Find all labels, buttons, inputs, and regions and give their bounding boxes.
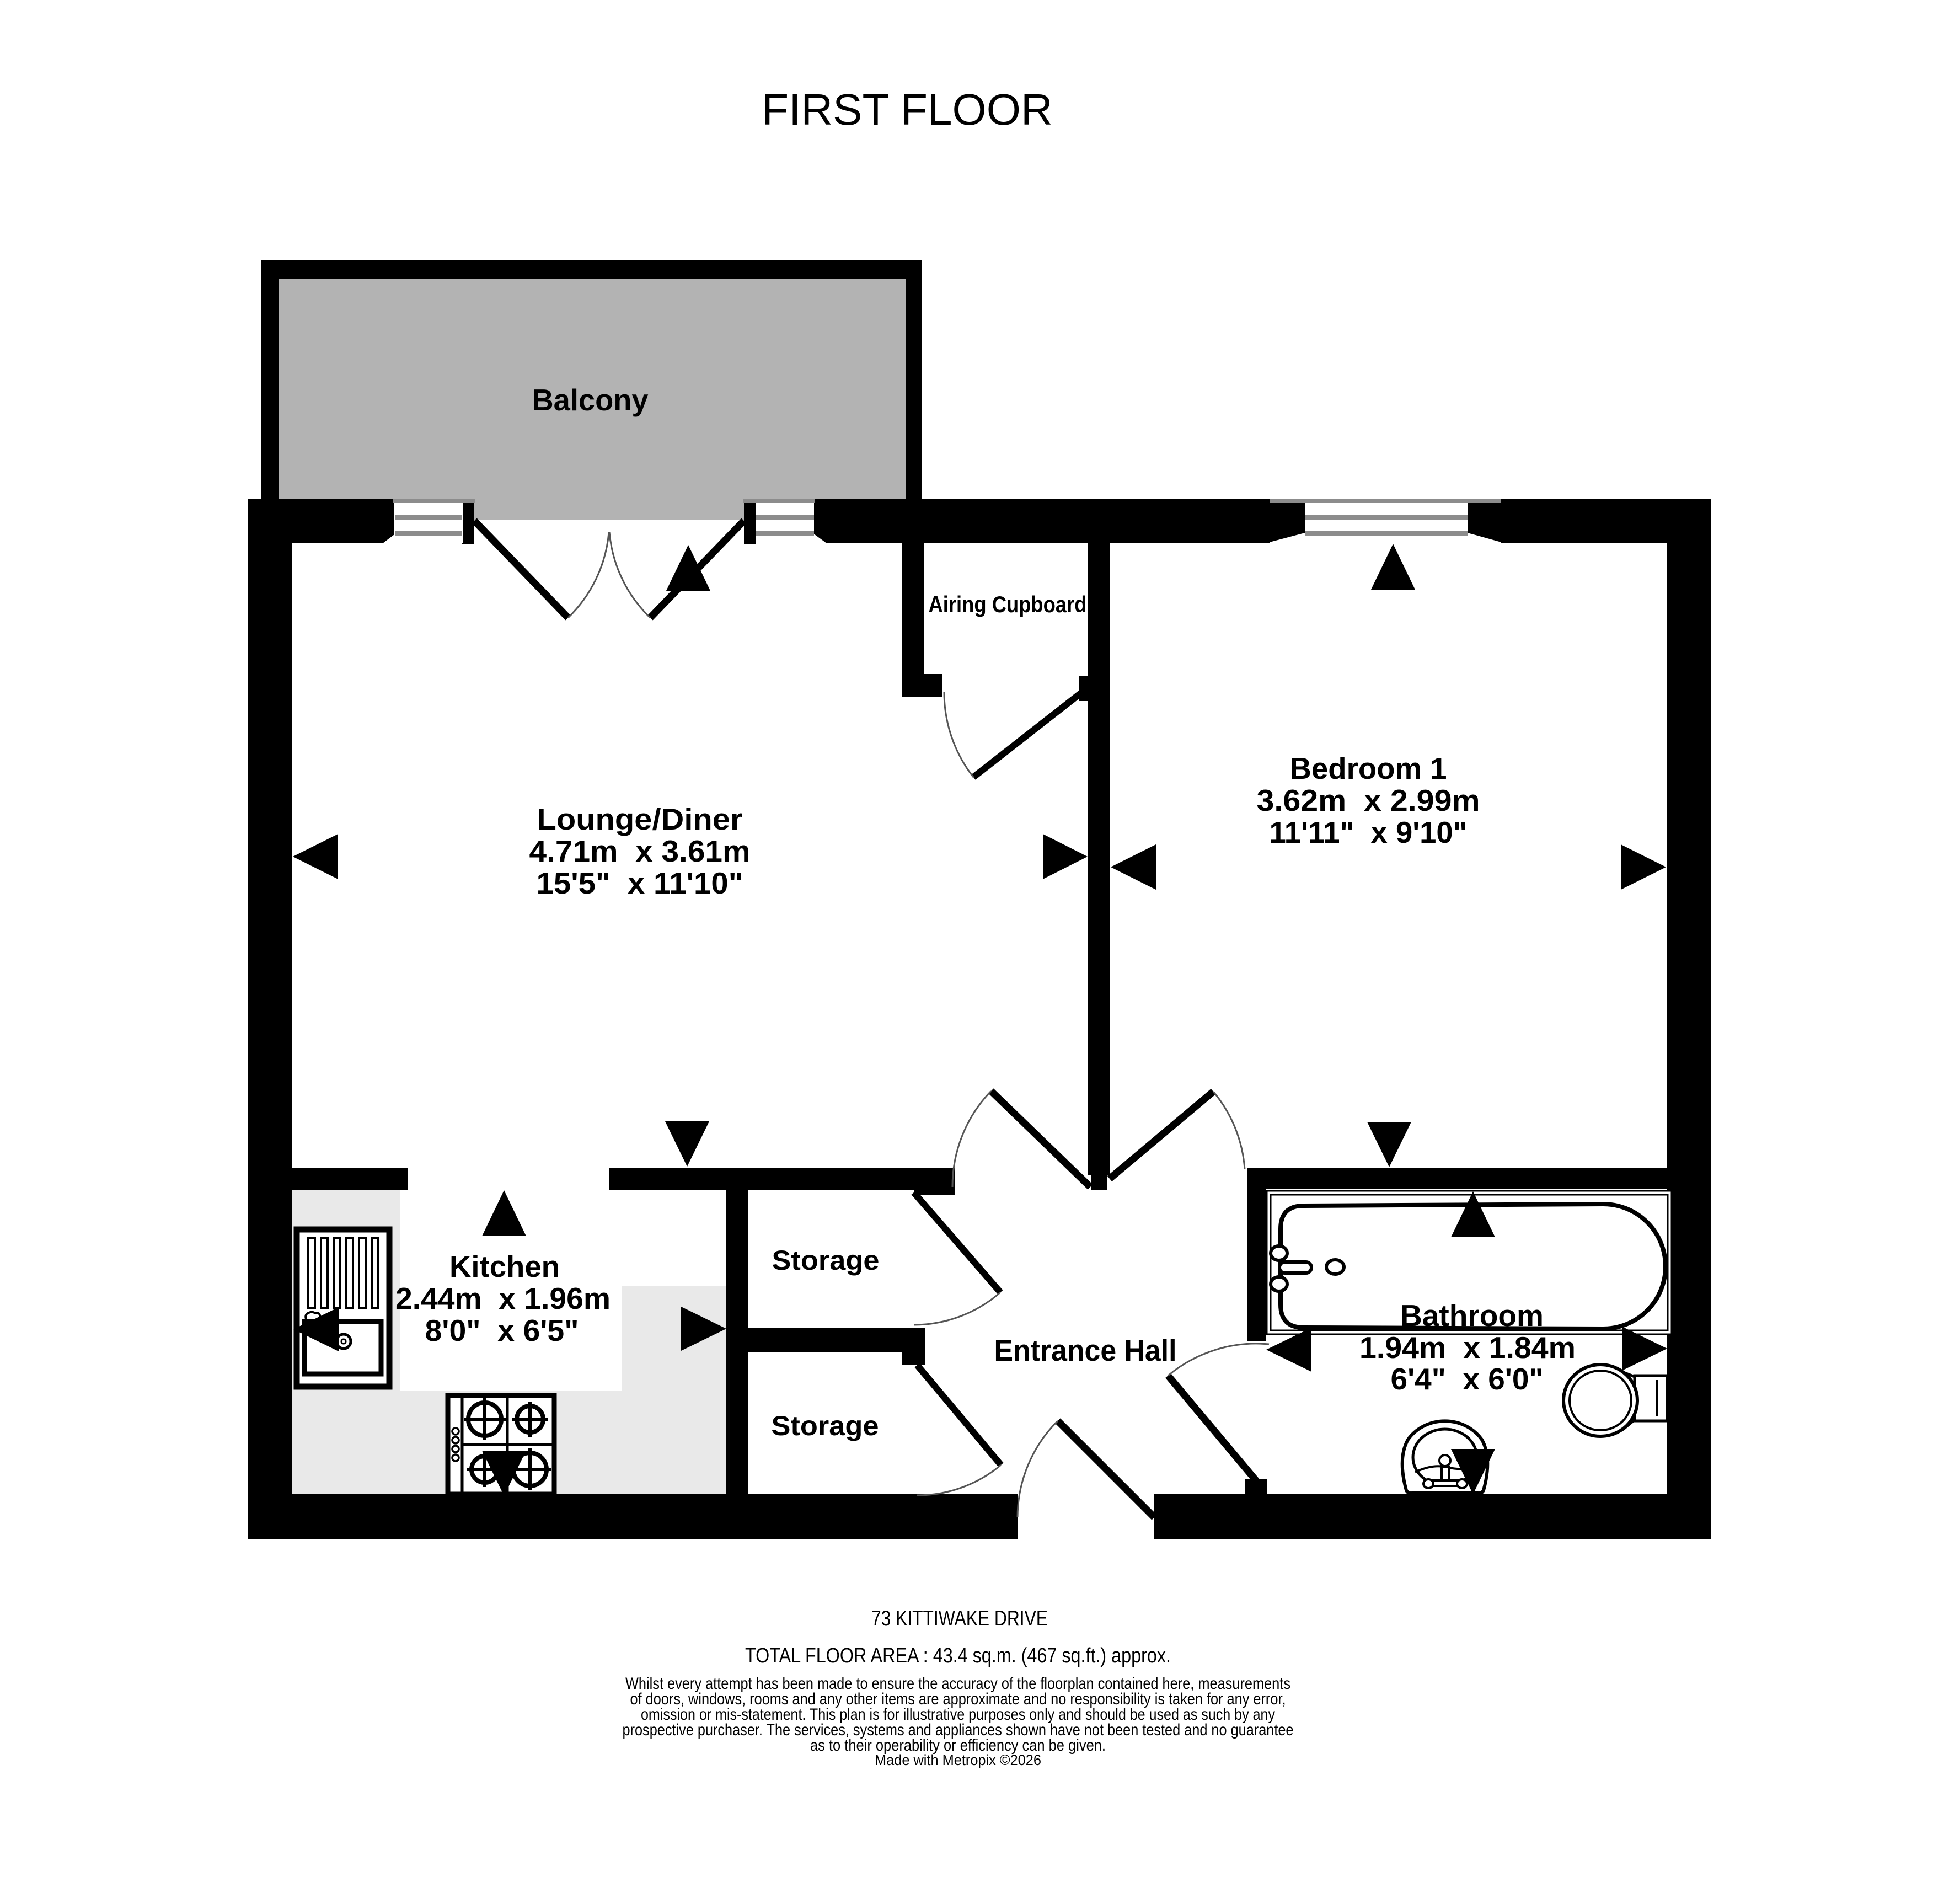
svg-text:TOTAL FLOOR AREA : 43.4 sq.m.: TOTAL FLOOR AREA : 43.4 sq.m. (467 sq.ft…: [745, 1644, 1171, 1667]
svg-text:Bathroom: Bathroom: [1400, 1298, 1544, 1333]
svg-text:Kitchen: Kitchen: [449, 1249, 560, 1284]
svg-text:Bedroom 1: Bedroom 1: [1290, 751, 1447, 785]
svg-text:Storage: Storage: [772, 1410, 879, 1441]
svg-text:Airing Cupboard: Airing Cupboard: [929, 591, 1087, 617]
svg-text:3.62m x 2.99m: 3.62m x 2.99m: [1257, 783, 1480, 817]
svg-text:15'5" x 11'10": 15'5" x 11'10": [537, 866, 743, 900]
svg-text:FIRST FLOOR: FIRST FLOOR: [762, 85, 1052, 134]
svg-text:Entrance Hall: Entrance Hall: [994, 1333, 1177, 1367]
svg-text:1.94m x 1.84m: 1.94m x 1.84m: [1359, 1330, 1576, 1365]
svg-text:6'4" x 6'0": 6'4" x 6'0": [1391, 1362, 1544, 1396]
svg-text:Balcony: Balcony: [532, 383, 649, 417]
svg-text:Lounge/Diner: Lounge/Diner: [537, 802, 743, 836]
svg-text:Made with Metropix ©2026: Made with Metropix ©2026: [875, 1752, 1041, 1768]
svg-text:11'11" x 9'10": 11'11" x 9'10": [1270, 815, 1468, 849]
svg-text:2.44m x 1.96m: 2.44m x 1.96m: [395, 1281, 611, 1315]
svg-text:Storage: Storage: [772, 1245, 880, 1276]
svg-text:73 KITTIWAKE DRIVE: 73 KITTIWAKE DRIVE: [871, 1607, 1048, 1630]
svg-text:4.71m x 3.61m: 4.71m x 3.61m: [529, 834, 751, 868]
svg-text:8'0" x 6'5": 8'0" x 6'5": [425, 1313, 579, 1347]
